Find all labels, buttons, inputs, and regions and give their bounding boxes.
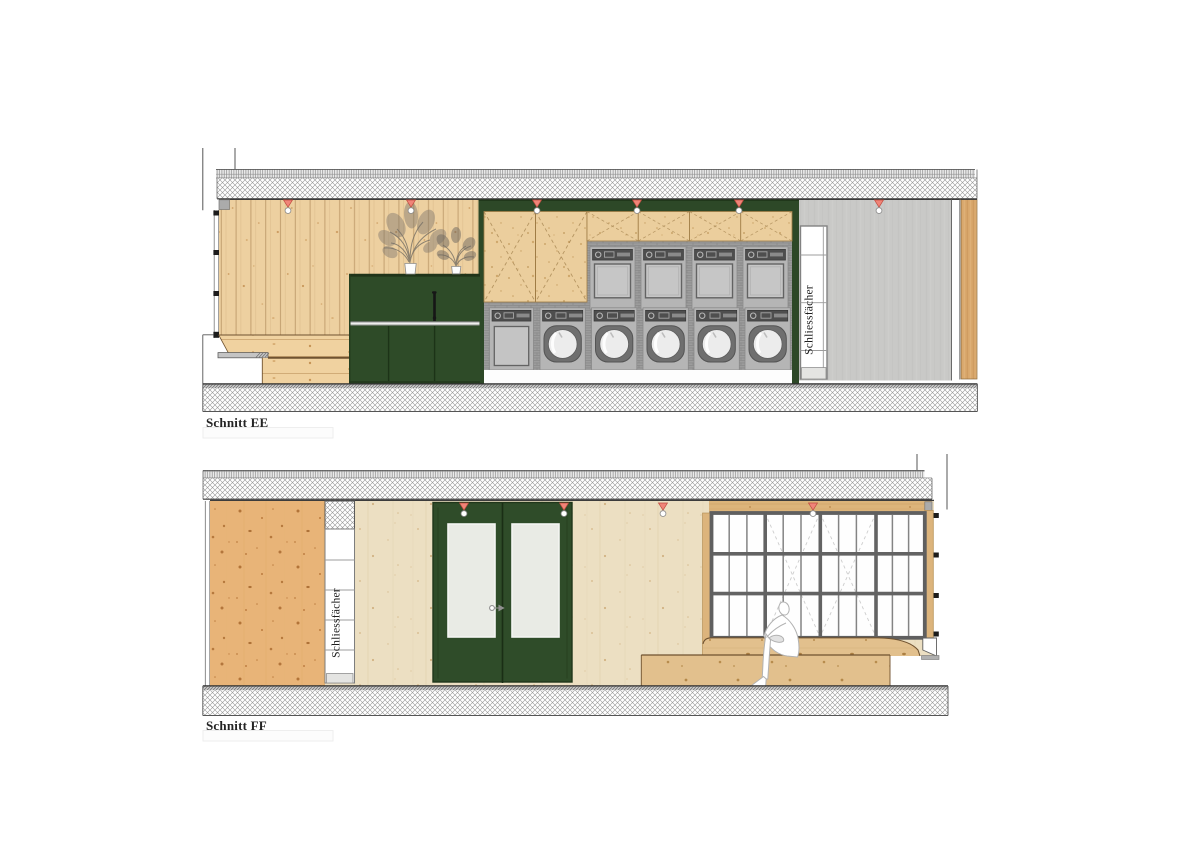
svg-text:Schliessfächer: Schliessfächer	[803, 285, 816, 355]
svg-text:Schliessfächer: Schliessfächer	[330, 588, 343, 658]
